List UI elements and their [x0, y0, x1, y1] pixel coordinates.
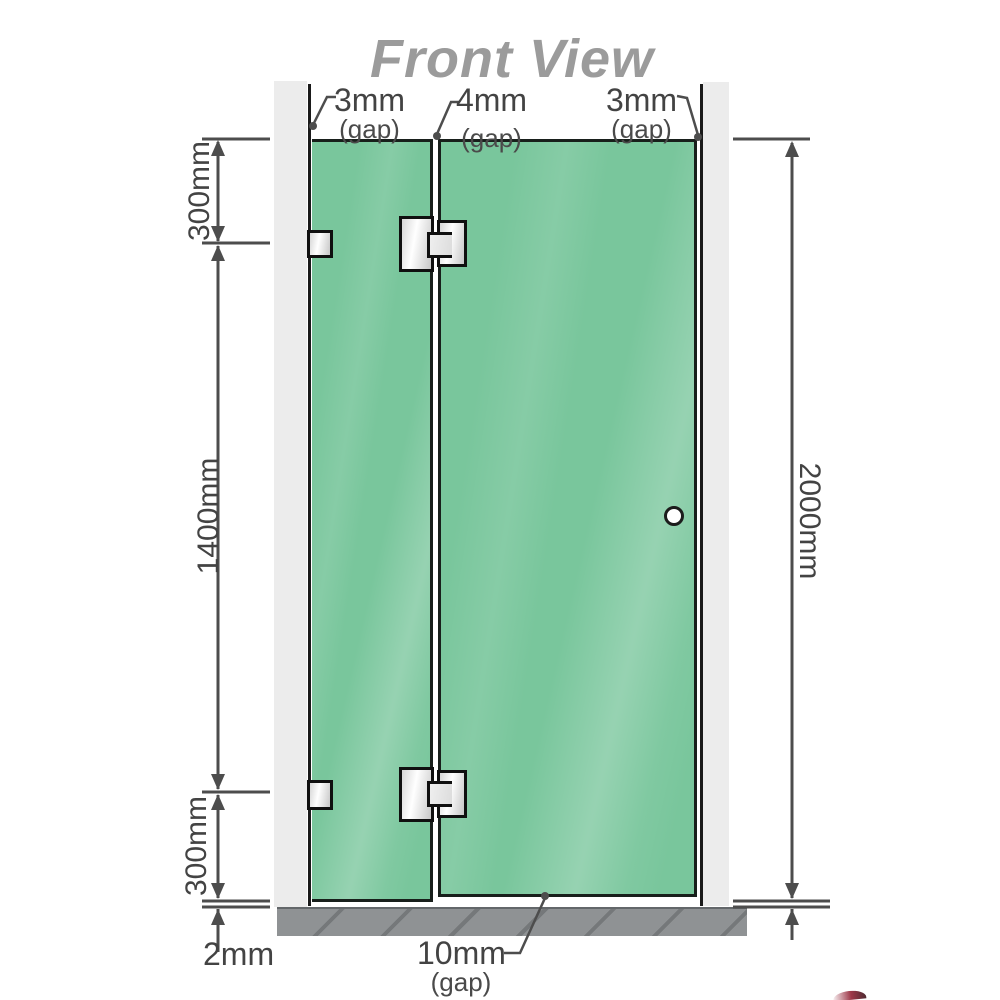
door-knob	[664, 506, 684, 526]
top-right-gap-label: 3mm (gap)	[599, 84, 684, 142]
right-wall-channel	[703, 82, 729, 906]
gap-word: (gap)	[599, 116, 684, 142]
gap-value: 3mm	[599, 84, 684, 116]
front-view-diagram: Front View	[0, 0, 1000, 1000]
gap-word: (gap)	[417, 969, 505, 995]
gap-word: (gap)	[449, 125, 534, 151]
gap-value: 3mm	[327, 84, 412, 116]
top-left-gap-label: 3mm (gap)	[327, 84, 412, 142]
dim-right-total: 2000mm	[794, 463, 824, 580]
right-wall-line	[700, 84, 703, 906]
door-glass-panel	[438, 139, 697, 897]
diagram-title: Front View	[312, 28, 712, 90]
dim-floor-offset: 2mm	[203, 938, 274, 970]
gap-value: 4mm	[449, 84, 534, 116]
dim-left-top: 300mm	[185, 141, 215, 241]
hinge-top-tab	[427, 232, 452, 258]
wall-bracket-top	[307, 230, 333, 258]
wall-bracket-bottom	[307, 780, 333, 810]
bottom-gap-label: 10mm (gap)	[417, 937, 505, 995]
watermark-fragment	[833, 989, 867, 1000]
gap-word: (gap)	[327, 116, 412, 142]
top-center-gap-label: 4mm (gap)	[449, 84, 534, 151]
dim-left-bottom: 300mm	[182, 796, 212, 896]
hinge-bottom-tab	[427, 781, 452, 807]
gap-value: 10mm	[417, 937, 505, 969]
floor-base	[277, 907, 747, 936]
dim-left-middle: 1400mm	[194, 458, 224, 575]
left-wall-channel	[274, 81, 307, 907]
